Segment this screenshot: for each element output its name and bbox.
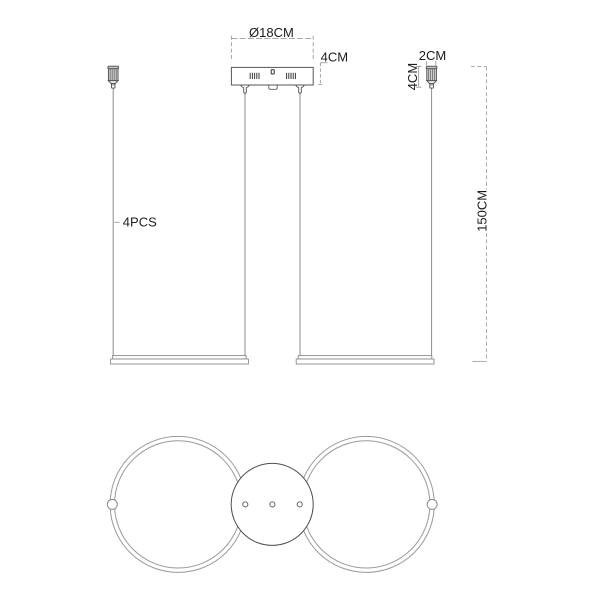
svg-text:150CM: 150CM — [475, 190, 490, 232]
svg-text:4CM: 4CM — [405, 63, 420, 90]
svg-text:2CM: 2CM — [419, 48, 446, 63]
svg-text:4PCS: 4PCS — [123, 214, 157, 229]
svg-text:Ø18CM: Ø18CM — [249, 25, 294, 40]
svg-text:4CM: 4CM — [321, 49, 348, 64]
